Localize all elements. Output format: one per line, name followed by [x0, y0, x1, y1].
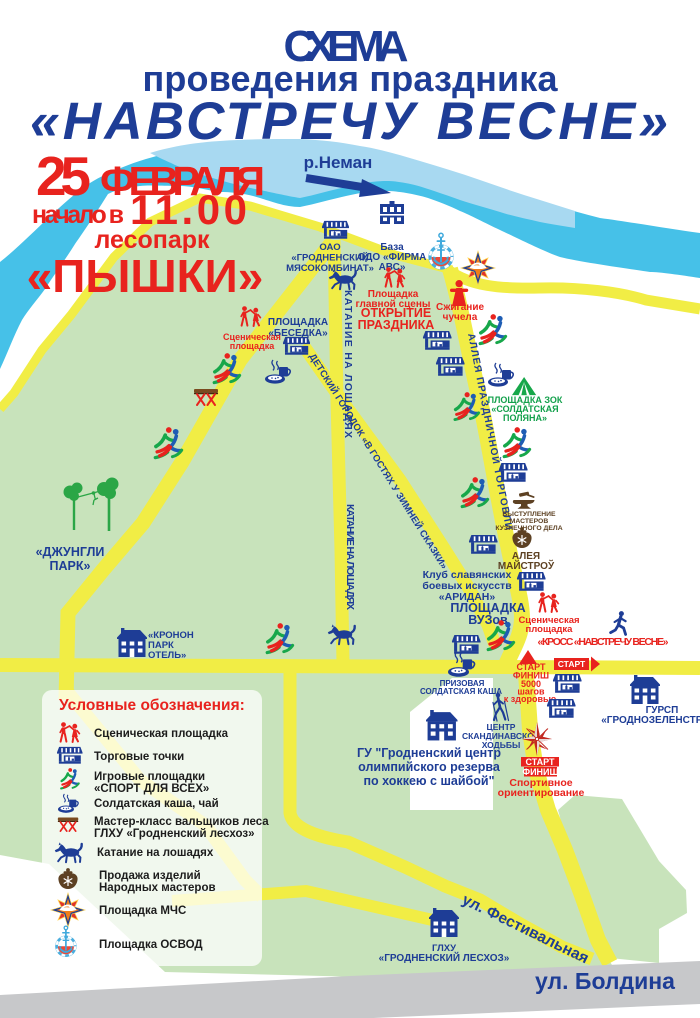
svg-text:Условные обозначения:: Условные обозначения:: [59, 697, 245, 714]
svg-text:Мастер-класс вальщиков леса: Мастер-класс вальщиков леса: [94, 816, 269, 828]
svg-text:Площадка ОСВОД: Площадка ОСВОД: [99, 939, 203, 951]
svg-text:СТАРТ: СТАРТ: [525, 757, 555, 767]
svg-text:ПОЛЯНА»: ПОЛЯНА»: [503, 413, 547, 423]
svg-text:25: 25: [36, 145, 91, 207]
svg-text:«КРОСС «НАВСТРЕЧУ ВЕСНЕ»: «КРОСС «НАВСТРЕЧУ ВЕСНЕ»: [538, 636, 669, 648]
svg-text:Торговые точки: Торговые точки: [94, 751, 184, 763]
svg-text:олимпийского резерва: олимпийского резерва: [358, 760, 501, 774]
svg-text:СТАРТ: СТАРТ: [558, 659, 586, 669]
svg-text:р.Неман: р.Неман: [304, 153, 373, 172]
svg-text:Солдатская каша, чай: Солдатская каша, чай: [94, 798, 219, 810]
svg-text:ГЛХУ «Гродненский лесхоз»: ГЛХУ «Гродненский лесхоз»: [94, 828, 255, 840]
svg-text:Игровые площадки: Игровые площадки: [94, 771, 205, 783]
svg-text:КУЗНЕЧНОГО ДЕЛА: КУЗНЕЧНОГО ДЕЛА: [495, 525, 562, 532]
svg-text:по хоккею с шайбой": по хоккею с шайбой": [364, 774, 495, 788]
svg-text:«НАВСТРЕЧУ ВЕСНЕ»: «НАВСТРЕЧУ ВЕСНЕ»: [30, 92, 668, 151]
svg-text:«ПЫШКИ»: «ПЫШКИ»: [27, 250, 264, 302]
svg-text:СОЛДАТСКАЯ КАША: СОЛДАТСКАЯ КАША: [420, 687, 502, 696]
svg-text:«ГРОДНОЗЕЛЕНСТРОЙ»: «ГРОДНОЗЕЛЕНСТРОЙ»: [601, 713, 700, 726]
svg-text:ПЛОЩАДКА: ПЛОЩАДКА: [268, 317, 328, 328]
svg-text:ПАРК»: ПАРК»: [50, 559, 91, 573]
svg-text:Катание на лошадях: Катание на лошадях: [97, 847, 214, 859]
svg-text:МЯСОКОМБИНАТ»: МЯСОКОМБИНАТ»: [286, 263, 374, 274]
svg-text:чучела: чучела: [443, 312, 478, 323]
svg-text:«ДЖУНГЛИ: «ДЖУНГЛИ: [36, 545, 105, 559]
svg-text:ФИНИШ: ФИНИШ: [522, 767, 558, 777]
svg-text:Сценическая площадка: Сценическая площадка: [94, 728, 229, 740]
svg-text:ПРАЗДНИКА: ПРАЗДНИКА: [358, 318, 435, 332]
svg-text:ОАО: ОАО: [319, 242, 340, 253]
svg-text:Народных мастеров: Народных мастеров: [99, 882, 216, 894]
svg-text:Продажа изделий: Продажа изделий: [99, 870, 201, 882]
svg-text:ВЫСТУПЛЕНИЕ: ВЫСТУПЛЕНИЕ: [502, 511, 556, 518]
svg-text:ул. Болдина: ул. Болдина: [535, 968, 675, 994]
svg-text:КАТАНИЕ НА ЛОШАДЯХ: КАТАНИЕ НА ЛОШАДЯХ: [344, 504, 356, 610]
svg-text:площадка: площадка: [526, 624, 574, 635]
svg-text:МАСТЕРОВ: МАСТЕРОВ: [510, 518, 549, 525]
svg-text:площадка: площадка: [230, 341, 275, 351]
svg-text:«СПОРТ ДЛЯ ВСЕХ»: «СПОРТ ДЛЯ ВСЕХ»: [94, 783, 209, 795]
svg-text:ОТЕЛЬ»: ОТЕЛЬ»: [148, 650, 186, 661]
svg-text:Площадка МЧС: Площадка МЧС: [99, 905, 186, 917]
svg-text:«ГРОДНЕНСКИЙ ЛЕСХОЗ»: «ГРОДНЕНСКИЙ ЛЕСХОЗ»: [379, 951, 510, 964]
svg-text:начало в: начало в: [32, 201, 124, 229]
svg-text:ГУ "Гродненский центр: ГУ "Гродненский центр: [357, 746, 501, 760]
svg-text:ориентирование: ориентирование: [498, 787, 585, 799]
